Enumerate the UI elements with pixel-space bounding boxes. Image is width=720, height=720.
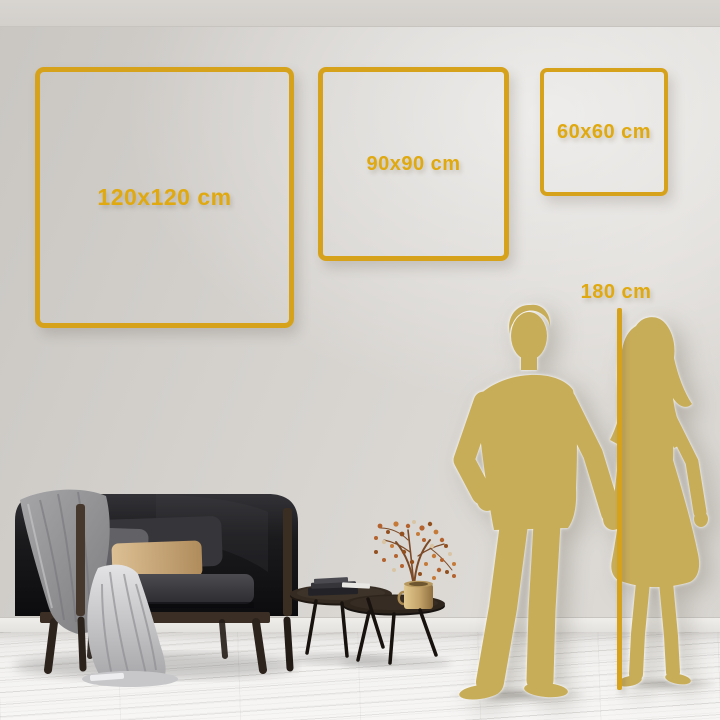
size-frame-120: 120x120 cm — [35, 67, 294, 328]
man-silhouette — [458, 305, 623, 702]
sofa-leg — [222, 622, 225, 656]
size-frame-60-label: 60x60 cm — [557, 121, 651, 144]
man-left-arm — [464, 402, 484, 494]
gold-vase-opening — [409, 582, 428, 586]
sofa-wood-post — [76, 504, 85, 616]
sofa — [6, 480, 302, 688]
nesting-coffee-tables — [284, 512, 464, 670]
size-frame-90-label: 90x90 cm — [366, 153, 460, 176]
size-guide-scene: 120x120 cm 90x90 cm 60x60 cm 180 cm — [0, 0, 720, 720]
woman-right-leg — [666, 582, 673, 672]
height-line — [617, 308, 622, 690]
gold-vase — [404, 584, 433, 609]
sofa-leg — [81, 620, 83, 668]
size-frame-120-label: 120x120 cm — [97, 184, 231, 211]
man-left-hand — [477, 489, 497, 511]
ceiling-seam — [0, 0, 720, 27]
man-right-leg — [540, 524, 547, 680]
woman-right-hand — [694, 511, 708, 527]
size-frame-90: 90x90 cm — [318, 67, 509, 261]
size-frame-60: 60x60 cm — [540, 68, 668, 196]
couple-silhouette — [440, 300, 720, 710]
woman-left-leg — [636, 582, 643, 674]
woman-silhouette — [610, 317, 708, 688]
man-left-leg — [490, 524, 514, 682]
